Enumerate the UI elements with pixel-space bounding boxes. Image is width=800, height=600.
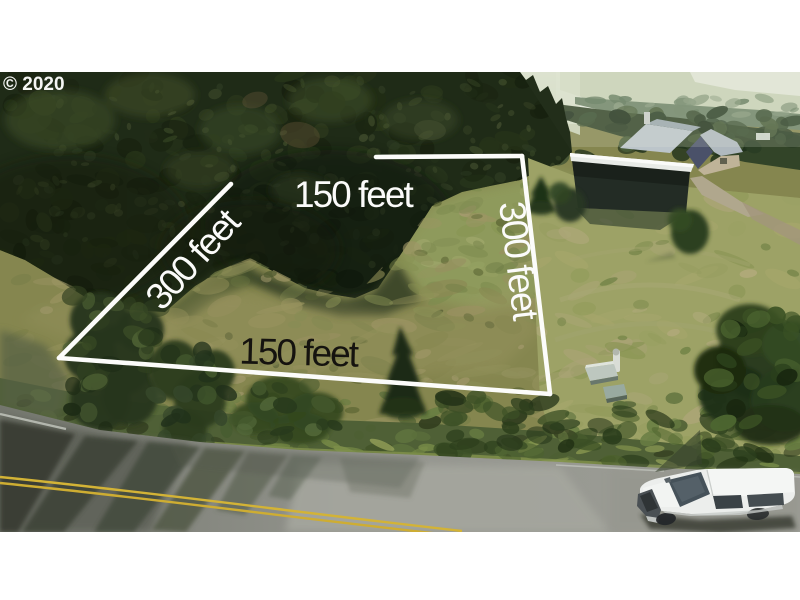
svg-text:150 feet: 150 feet	[294, 174, 414, 215]
svg-text:© 2020: © 2020	[3, 74, 65, 95]
svg-text:150 feet: 150 feet	[239, 331, 360, 375]
